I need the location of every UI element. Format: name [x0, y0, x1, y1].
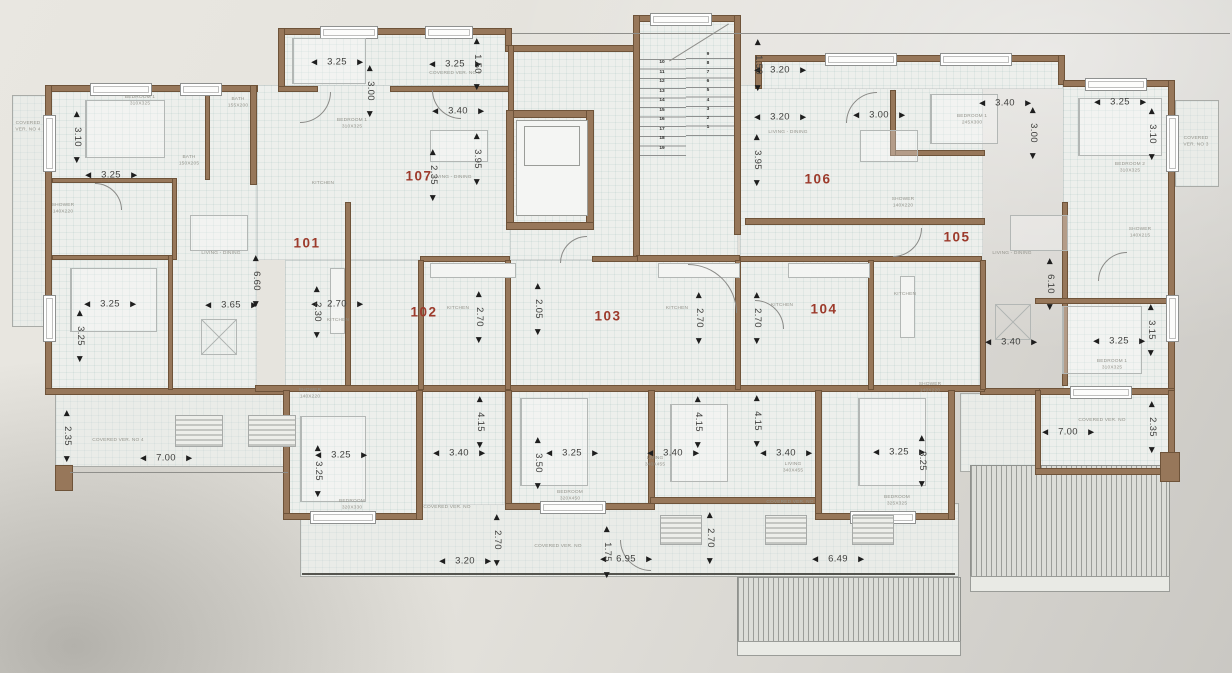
- table-x: [201, 319, 237, 355]
- wall-segment: [168, 255, 173, 390]
- floor-plan: LIFT MECH 3.253.253.403.253.253.652.707.…: [0, 0, 1232, 673]
- stair-step-number: 13: [659, 88, 664, 93]
- stair-treads: [686, 52, 734, 136]
- dimension-label: 2.70: [327, 299, 347, 309]
- dimension-label: 3.50: [533, 453, 543, 473]
- dimension-label: 7.00: [156, 453, 176, 463]
- stair-step-number: 19: [659, 145, 664, 150]
- wall-segment: [205, 85, 210, 180]
- dimension-label: 3.25: [1109, 336, 1129, 346]
- dimension-label: 3.25: [100, 299, 120, 309]
- dimension-label: 3.40: [995, 98, 1015, 108]
- wall-segment: [592, 256, 638, 262]
- room-label: BEDROOM 2 310X325: [1115, 162, 1145, 174]
- floor-area: [257, 85, 512, 260]
- bed: [85, 100, 165, 158]
- dimension-label: 3.40: [776, 448, 796, 458]
- sun-lounger: [852, 515, 894, 545]
- window: [825, 53, 897, 66]
- dimension-label: 6.49: [828, 554, 848, 564]
- unit-number-101: 101: [293, 236, 320, 251]
- wall-segment: [45, 388, 285, 395]
- wall-segment: [633, 15, 640, 262]
- bed: [520, 398, 588, 486]
- sofa: [860, 130, 918, 162]
- room-label: COVERED VER. NO: [423, 505, 470, 511]
- stair-step-number: 3: [707, 106, 710, 111]
- wall-segment: [740, 256, 982, 262]
- dimension-label: 2.70: [705, 528, 715, 548]
- room-label: COVERED VER. NO 3: [1183, 136, 1208, 148]
- dimension-label: 3.20: [770, 112, 790, 122]
- railing: [302, 573, 955, 575]
- dimension-label: 6.60: [251, 271, 261, 291]
- stair-step-number: 16: [659, 117, 664, 122]
- lift-car: [524, 126, 580, 166]
- room-label: BEDROOM 1 245X300: [957, 114, 987, 126]
- room-label: SHOWER 140X220: [919, 382, 942, 394]
- dimension-label: 2.35: [1147, 417, 1157, 437]
- dimension-label: 3.25: [75, 326, 85, 346]
- dimension-label: 3.25: [101, 170, 121, 180]
- wall-segment: [55, 465, 73, 491]
- wall-segment: [1160, 452, 1180, 482]
- wall-segment: [420, 256, 510, 262]
- unit-number-107: 107: [405, 169, 432, 184]
- dimension-label: 3.25: [327, 57, 347, 67]
- stair-step-number: 5: [707, 88, 710, 93]
- wall-segment: [980, 388, 1040, 395]
- dimension-label: 3.40: [449, 448, 469, 458]
- sun-lounger: [248, 415, 296, 447]
- deck-edge-band: [737, 641, 961, 656]
- wall-segment: [255, 385, 985, 392]
- wall-segment: [250, 85, 257, 185]
- reference-line: [70, 472, 288, 473]
- window: [180, 83, 222, 96]
- room-label: COVERED VER. NO: [1078, 418, 1125, 424]
- dimension-label: 2.70: [752, 308, 762, 328]
- room-label: LIVING - DINING: [768, 130, 807, 136]
- room-label: BATH 150X205: [179, 155, 199, 167]
- dimension-label: 3.00: [1028, 123, 1038, 143]
- stair-step-number: 18: [659, 136, 664, 141]
- dimension-label: 2.30: [312, 302, 322, 322]
- dimension-label: 3.25: [313, 461, 323, 481]
- dimension-label: 3.25: [1110, 97, 1130, 107]
- table-x: [995, 304, 1031, 340]
- room-label: COVERED VER. NO 4: [92, 438, 144, 444]
- dimension-label: 3.25: [889, 447, 909, 457]
- room-label: BEDROOM 325X325: [884, 495, 910, 507]
- reference-line: [512, 33, 1230, 34]
- stair-step-number: 6: [707, 79, 710, 84]
- room-label: COVERED VER. NO 4: [15, 121, 40, 133]
- dimension-label: 3.10: [1147, 124, 1157, 144]
- dimension-label: 3.25: [917, 451, 927, 471]
- room-label: BATH 155X200: [228, 97, 248, 109]
- wall-segment: [506, 110, 594, 118]
- sofa: [1010, 215, 1068, 251]
- wall-segment: [1035, 468, 1175, 475]
- wall-segment: [1035, 298, 1175, 304]
- stair-step-number: 7: [707, 70, 710, 75]
- dimension-label: 6.95: [616, 554, 636, 564]
- stair-step-number: 14: [659, 98, 664, 103]
- wall-segment: [868, 260, 874, 390]
- dimension-label: 4.15: [693, 412, 703, 432]
- wall-segment: [734, 15, 741, 235]
- room-label: KITCHEN: [447, 306, 469, 312]
- dimension-label: 2.35: [62, 426, 72, 446]
- stair-step-number: 8: [707, 61, 710, 66]
- wall-segment: [416, 390, 423, 520]
- dimension-label: 3.65: [221, 300, 241, 310]
- wall-segment: [948, 390, 955, 520]
- dimension-label: 2.70: [474, 307, 484, 327]
- wall-segment: [815, 390, 822, 520]
- dimension-label: 3.40: [663, 448, 683, 458]
- sofa: [190, 215, 248, 251]
- dimension-label: 7.00: [1058, 427, 1078, 437]
- bed: [858, 398, 926, 486]
- dimension-label: 1.50: [753, 55, 763, 75]
- dimension-label: 2.70: [694, 308, 704, 328]
- dimension-label: 3.25: [331, 450, 351, 460]
- stair-step-number: 4: [707, 97, 710, 102]
- stair-step-number: 1: [707, 124, 710, 129]
- wall-segment: [980, 260, 986, 390]
- dimension-label: 3.00: [365, 81, 375, 101]
- unit-number-103: 103: [594, 309, 621, 324]
- dimension-label: 4.15: [752, 411, 762, 431]
- floor-area: [285, 260, 980, 390]
- room-label: LIVING - DINING: [992, 251, 1031, 257]
- window: [1085, 78, 1147, 91]
- stair-step-number: 9: [707, 52, 710, 57]
- unit-number-102: 102: [410, 305, 437, 320]
- room-label: BEDROOM 1 310X325: [337, 118, 367, 130]
- wall-segment: [745, 218, 985, 225]
- dimension-label: 3.15: [1146, 320, 1156, 340]
- room-label: BEDROOM 1 310X325: [125, 95, 155, 107]
- wall-segment: [506, 110, 514, 228]
- wall-segment: [345, 202, 351, 386]
- stair-step-number: 10: [659, 60, 664, 65]
- unit-number-105: 105: [943, 230, 970, 245]
- wall-segment: [636, 255, 740, 262]
- wall-segment: [508, 45, 514, 120]
- dimension-label: 1.75: [602, 542, 612, 562]
- wall-segment: [505, 45, 640, 52]
- kitchen-counter: [900, 276, 915, 338]
- sun-lounger: [765, 515, 807, 545]
- room-label: LIVING 340X455: [783, 462, 803, 474]
- wall-segment: [506, 222, 594, 230]
- dimension-label: 3.20: [770, 65, 790, 75]
- dimension-label: 3.25: [562, 448, 582, 458]
- room-label: COVERED VER. NO: [534, 544, 581, 550]
- dimension-label: 3.10: [72, 127, 82, 147]
- room-label: BEDROOM 320X330: [339, 499, 365, 511]
- wall-segment: [172, 178, 177, 260]
- window: [1166, 115, 1179, 172]
- room-label: SHOWER 140X220: [892, 197, 915, 209]
- stair-step-number: 17: [659, 126, 664, 131]
- wall-segment: [52, 255, 172, 260]
- room-label: COVERED VER. NO 5: [429, 71, 481, 77]
- dimension-label: 2.70: [492, 530, 502, 550]
- stair-step-number: 15: [659, 107, 664, 112]
- window: [310, 511, 376, 524]
- kitchen-counter: [430, 263, 516, 278]
- deck-area: [970, 465, 1170, 580]
- dimension-label: 4.15: [475, 412, 485, 432]
- room-label: SHOWER 140X215: [1129, 227, 1152, 239]
- dimension-label: 3.00: [869, 110, 889, 120]
- dimension-label: 3.20: [455, 556, 475, 566]
- room-label: BEDROOM 1 310X325: [1097, 359, 1127, 371]
- sun-lounger: [660, 515, 702, 545]
- wall-segment: [735, 260, 741, 390]
- window: [425, 26, 473, 39]
- stair-step-number: 12: [659, 79, 664, 84]
- room-label: LIVING 340X455: [645, 456, 665, 468]
- dimension-label: 2.05: [533, 299, 543, 319]
- room-label: LIVING - DINING: [201, 251, 240, 257]
- room-label: BEDROOM 320X450: [557, 490, 583, 502]
- window: [43, 115, 56, 172]
- room-label: KITCHEN: [771, 303, 793, 309]
- dimension-label: 3.95: [752, 150, 762, 170]
- wall-segment: [283, 390, 290, 520]
- room-label: COVERED VER. NO: [766, 500, 813, 506]
- wall-segment: [418, 260, 424, 390]
- window: [43, 295, 56, 342]
- room-label: KITCHEN: [666, 306, 688, 312]
- unit-number-104: 104: [810, 302, 837, 317]
- room-label: KITCHEN: [894, 292, 916, 298]
- deck-edge-band: [970, 576, 1170, 592]
- wall-segment: [505, 260, 511, 390]
- wall-segment: [278, 28, 285, 92]
- window: [940, 53, 1012, 66]
- dimension-label: 3.40: [1001, 337, 1021, 347]
- window: [540, 501, 606, 514]
- wall-segment: [278, 28, 512, 35]
- stair-step-number: 2: [707, 115, 710, 120]
- room-label: KITCHEN: [327, 318, 349, 324]
- window: [650, 13, 712, 26]
- deck-area: [737, 577, 961, 645]
- wall-segment: [505, 390, 512, 510]
- wall-segment: [755, 55, 1065, 62]
- room-label: SHOWER 140X220: [299, 388, 322, 400]
- dimension-label: 3.40: [448, 106, 468, 116]
- room-label: LIVING - DINING: [432, 175, 471, 181]
- stair-step-number: 11: [659, 69, 664, 74]
- kitchen-counter: [788, 263, 870, 278]
- dimension-label: 6.10: [1045, 274, 1055, 294]
- window: [1070, 386, 1132, 399]
- room-label: SHOWER 140X220: [52, 203, 75, 215]
- sun-lounger: [175, 415, 223, 447]
- unit-number-106: 106: [804, 172, 831, 187]
- window: [1166, 295, 1179, 342]
- dimension-label: 3.25: [445, 59, 465, 69]
- dimension-label: 3.95: [472, 149, 482, 169]
- room-label: KITCHEN: [312, 181, 334, 187]
